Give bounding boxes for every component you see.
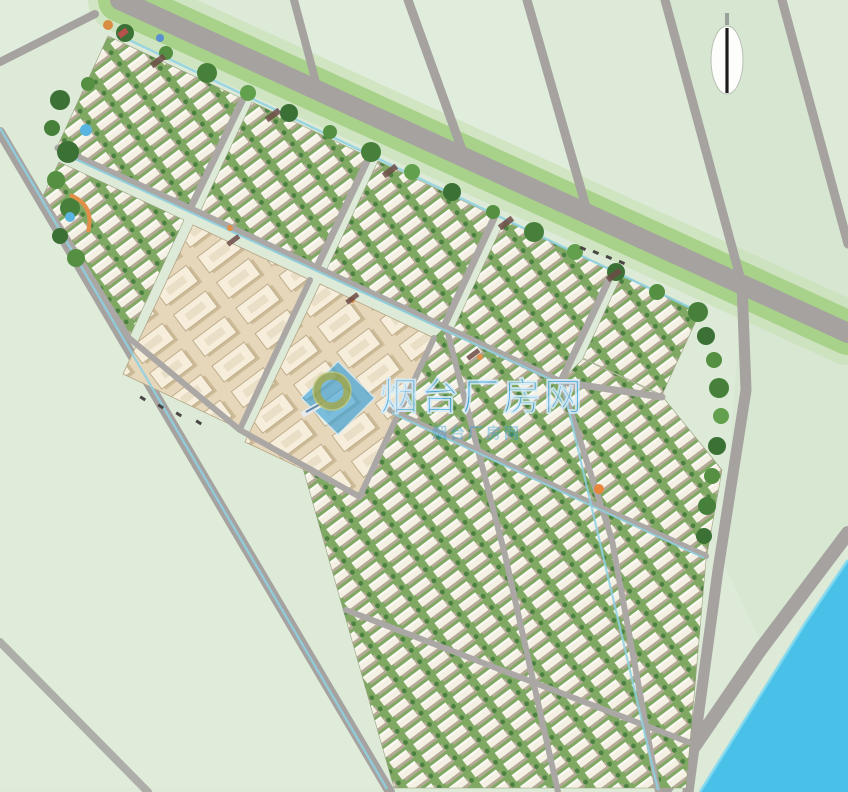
pond [65,212,75,222]
master-plan-rendering: 烟台厂房网 烟台厂房网 [0,0,848,792]
pond [156,34,164,42]
watermark-text: 烟台厂房网 [380,375,585,419]
pond [80,124,92,136]
watermark-faint-text: 烟台厂房网 [432,424,522,442]
site-plan-map: 烟台厂房网 烟台厂房网 [0,0,848,792]
